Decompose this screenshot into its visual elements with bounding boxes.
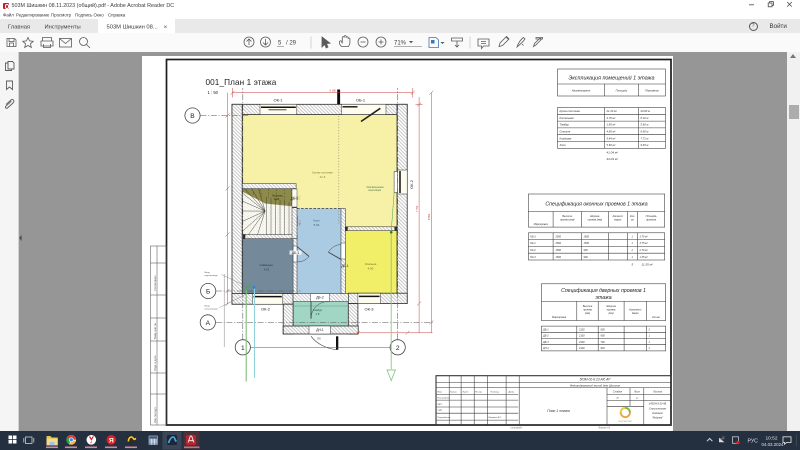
svg-text:2100: 2100 — [578, 347, 585, 350]
svg-text:блок включения: блок включения — [366, 187, 384, 189]
svg-text:Согласовано: Согласовано — [152, 275, 156, 291]
svg-text:1: 1 — [631, 256, 633, 259]
svg-text:Котельная: Котельная — [559, 116, 574, 120]
svg-text:проема (мм): проема (мм) — [587, 219, 602, 222]
svg-text:Кладовая: Кладовая — [559, 136, 571, 140]
svg-text:ОК-2: ОК-2 — [261, 307, 271, 312]
svg-text:Взам. инв. №: Взам. инв. № — [152, 323, 156, 339]
svg-text:900: 900 — [317, 338, 322, 341]
svg-text:2100: 2100 — [578, 335, 585, 338]
svg-text:1: 1 — [631, 242, 633, 245]
svg-text:Строительная: Строительная — [649, 409, 667, 411]
svg-text:1: 1 — [631, 235, 633, 238]
svg-text:7.71 м: 7.71 м — [640, 136, 648, 140]
svg-text:1: 1 — [648, 347, 650, 350]
svg-text:503М-02-К.23-АР, АР: 503М-02-К.23-АР, АР — [579, 378, 611, 382]
svg-text:8 950: 8 950 — [428, 213, 431, 220]
svg-text:ГИП: ГИП — [437, 410, 442, 412]
svg-text:Кухня-гостиная: Кухня-гостиная — [559, 109, 580, 113]
svg-text:Я: Я — [109, 437, 114, 444]
svg-text:2100: 2100 — [578, 329, 585, 332]
svg-text:Кол-во: Кол-во — [652, 316, 660, 319]
svg-text:Компания: Компания — [652, 413, 663, 415]
svg-text:Справка: Справка — [108, 13, 126, 18]
svg-text:Индивидуальный жилой дом Шишки: Индивидуальный жилой дом Шишкин — [569, 383, 620, 387]
svg-text:П: П — [616, 397, 618, 400]
svg-text:×: × — [164, 23, 168, 30]
svg-text:ОК-3: ОК-3 — [364, 307, 374, 312]
svg-text:ДН-1: ДН-1 — [316, 328, 324, 332]
svg-text:8.10 м: 8.10 м — [640, 116, 648, 120]
svg-text:Площадь: Площадь — [615, 89, 627, 93]
svg-text:ОК-2: ОК-2 — [409, 179, 414, 189]
svg-text:2: 2 — [630, 249, 633, 252]
svg-text:Ввод: Ввод — [204, 306, 210, 308]
svg-text:5.60 м²: 5.60 м² — [606, 143, 615, 147]
svg-text:503М Шишкин 08.11.2023 (общий): 503М Шишкин 08.11.2023 (общий).pdf - Ado… — [12, 2, 175, 9]
svg-text:21.6: 21.6 — [319, 175, 325, 179]
svg-text:4.70 м²: 4.70 м² — [606, 116, 615, 120]
svg-text:Разработал: Разработал — [437, 417, 451, 419]
svg-text:Лист: Лист — [461, 391, 468, 393]
svg-text:1500: 1500 — [555, 249, 561, 252]
svg-text:Ввод: Ввод — [204, 272, 210, 274]
svg-text:Дата: Дата — [507, 391, 515, 393]
svg-text:Инструменты: Инструменты — [45, 24, 81, 30]
svg-text:11.55 м²: 11.55 м² — [641, 263, 653, 267]
svg-text:1500: 1500 — [583, 242, 589, 245]
svg-text:Холл: Холл — [558, 143, 566, 147]
svg-text:ДБ-2: ДБ-2 — [542, 335, 549, 338]
svg-text:ЛМ-1: ЛМ-1 — [299, 220, 301, 226]
svg-text:Подпись: Подпись — [75, 13, 93, 18]
svg-text:МОДУЛЬПРОЕКТ: МОДУЛЬПРОЕКТ — [618, 421, 632, 423]
svg-text:1.8: 1.8 — [315, 312, 319, 316]
svg-text:5: 5 — [278, 40, 282, 46]
svg-text:Подп. и дата: Подп. и дата — [152, 355, 156, 371]
svg-text:5.64: 5.64 — [313, 223, 319, 227]
svg-text:двери: двери — [631, 312, 638, 315]
svg-text:71%: 71% — [394, 40, 407, 46]
svg-text:43.04 м²: 43.04 м² — [606, 157, 618, 161]
svg-text:Спальня: Спальня — [559, 130, 570, 134]
svg-text:800: 800 — [600, 329, 605, 332]
svg-text:9х19: 9х19 — [274, 198, 280, 201]
svg-text:ОБ-1: ОБ-1 — [530, 235, 536, 238]
svg-text:План 1 этажа: План 1 этажа — [547, 409, 570, 413]
svg-text:Стадия: Стадия — [613, 390, 623, 393]
svg-text:Главная: Главная — [8, 24, 30, 30]
svg-text:2500: 2500 — [554, 235, 561, 238]
svg-text:Наименование: Наименование — [571, 89, 590, 93]
svg-text:2.70 м²: 2.70 м² — [638, 249, 647, 252]
svg-text:Листов: Листов — [652, 390, 662, 393]
svg-text:Просмотр: Просмотр — [51, 13, 72, 18]
svg-text:проема (мм): проема (мм) — [559, 219, 574, 222]
svg-text:Файл: Файл — [3, 13, 14, 18]
svg-text:9.83 м: 9.83 м — [640, 143, 648, 147]
svg-text:503М Шишкин 08...: 503М Шишкин 08... — [107, 24, 159, 30]
svg-text:РУС: РУС — [748, 438, 759, 444]
svg-text:(мм): (мм) — [608, 312, 613, 315]
svg-text:900: 900 — [583, 249, 588, 252]
svg-text:(мм): (мм) — [584, 312, 589, 315]
svg-text:канализации: канализации — [204, 308, 218, 310]
svg-text:во: во — [631, 219, 634, 222]
svg-text:Редактирование: Редактирование — [16, 13, 50, 18]
svg-text:3.75 м²: 3.75 м² — [639, 235, 647, 238]
svg-text:Изм.: Изм. — [437, 391, 442, 393]
svg-text:"Модулер": "Модулер" — [651, 417, 662, 420]
svg-text:Подпись: Подпись — [490, 390, 500, 393]
svg-text:1.80 м²: 1.80 м² — [606, 123, 615, 127]
svg-text:21.10 м²: 21.10 м² — [605, 109, 616, 113]
svg-text:Инв. № подл.: Инв. № подл. — [152, 407, 156, 423]
svg-text:Нач.отдела: Нач.отдела — [437, 397, 450, 400]
svg-text:1500: 1500 — [555, 256, 561, 259]
svg-text:/ 29: / 29 — [286, 40, 297, 46]
svg-text:Окно: Окно — [94, 13, 105, 18]
svg-text:1500: 1500 — [583, 235, 589, 238]
svg-text:Спецификация оконных проемов 1: Спецификация оконных проемов 1 этажа — [545, 202, 647, 208]
svg-text:8.80 м: 8.80 м — [640, 130, 648, 134]
svg-text:ДБ-1: ДБ-1 — [291, 251, 298, 255]
svg-text:водопровода: водопровода — [204, 275, 218, 277]
svg-text:этажа: этажа — [595, 295, 611, 301]
svg-text:5: 5 — [631, 263, 633, 267]
svg-text:ДН-1: ДН-1 — [542, 347, 549, 350]
svg-text:Б: Б — [206, 289, 210, 296]
svg-text:ОК-3: ОК-3 — [530, 256, 536, 259]
svg-text:4.80 м²: 4.80 м² — [606, 130, 615, 134]
svg-text:7 750: 7 750 — [415, 205, 418, 212]
svg-text:гипрофайл: гипрофайл — [510, 426, 522, 429]
svg-text:Тамбур: Тамбур — [559, 123, 569, 127]
svg-text:ОК-1: ОК-1 — [530, 242, 536, 245]
svg-text:2: 2 — [647, 329, 650, 332]
svg-text:Периметр: Периметр — [645, 89, 659, 93]
svg-text:вентиляции: вентиляции — [368, 190, 381, 192]
svg-text:1: 1 — [648, 335, 650, 338]
svg-text:к/503ХХХ-23-АВ: к/503ХХХ-23-АВ — [648, 403, 666, 406]
svg-text:Шишкин В.С.: Шишкин В.С. — [488, 417, 502, 419]
svg-text:ОБ-1: ОБ-1 — [355, 98, 365, 103]
svg-text:В: В — [190, 113, 195, 120]
svg-text:ДБ-2: ДБ-2 — [316, 296, 324, 300]
svg-text:марки: марки — [614, 219, 622, 222]
svg-text:Лист: Лист — [632, 390, 639, 393]
svg-text:Маркировка: Маркировка — [552, 316, 567, 319]
svg-text:5.60 м: 5.60 м — [640, 123, 648, 127]
svg-text:6 100: 6 100 — [329, 89, 336, 92]
svg-text:проемов: проемов — [646, 219, 657, 222]
svg-text:1: 1 — [648, 341, 650, 344]
svg-text:Спецификация дверных проемов 1: Спецификация дверных проемов 1 — [561, 288, 646, 294]
svg-text:ОК-2: ОК-2 — [530, 249, 536, 252]
svg-text:3.75 м²: 3.75 м² — [639, 242, 647, 245]
svg-text:920: 920 — [600, 347, 605, 350]
svg-text:001_План 1 этажа: 001_План 1 этажа — [205, 78, 276, 87]
svg-text:900: 900 — [583, 256, 588, 259]
svg-text:Формат А3: Формат А3 — [598, 426, 610, 429]
svg-text:4.90: 4.90 — [367, 266, 373, 270]
svg-text:№ док.: № док. — [475, 390, 482, 393]
svg-text:700: 700 — [600, 341, 605, 344]
svg-text:1.35 м²: 1.35 м² — [639, 256, 647, 259]
svg-text:41.04 м²: 41.04 м² — [606, 151, 618, 155]
svg-text:10:52: 10:52 — [766, 436, 778, 442]
svg-text:4.16: 4.16 — [263, 267, 269, 271]
svg-text:ДБ-3: ДБ-3 — [542, 341, 549, 344]
svg-text:Кол.уч: Кол.уч — [450, 391, 457, 393]
svg-text:900: 900 — [600, 335, 605, 338]
svg-text:ОК-1: ОК-1 — [273, 98, 283, 103]
svg-text:Лестница: Лестница — [272, 194, 283, 197]
svg-text:ДБ-1: ДБ-1 — [542, 329, 549, 332]
svg-text:Совмещен.: Совмещен. — [259, 263, 273, 267]
svg-text:1: 1 — [240, 345, 244, 352]
svg-text:1 : 50: 1 : 50 — [207, 90, 218, 95]
svg-text:2100: 2100 — [578, 341, 585, 344]
svg-text:2500: 2500 — [554, 242, 561, 245]
svg-text:5.64 м²: 5.64 м² — [606, 136, 615, 140]
svg-text:ДБ-1: ДБ-1 — [341, 264, 348, 268]
svg-text:ДБ-3: ДБ-3 — [290, 196, 297, 200]
svg-text:04.03.2024: 04.03.2024 — [762, 442, 785, 447]
svg-text:20.60 м: 20.60 м — [639, 109, 649, 113]
svg-text:Экспликация помещений 1 этажа: Экспликация помещений 1 этажа — [568, 75, 654, 82]
svg-text:А: А — [205, 320, 210, 327]
svg-text:ГАП: ГАП — [437, 403, 441, 406]
svg-text:Маркировка: Маркировка — [533, 223, 548, 226]
svg-text:2: 2 — [635, 397, 638, 400]
svg-text:2: 2 — [395, 345, 399, 352]
